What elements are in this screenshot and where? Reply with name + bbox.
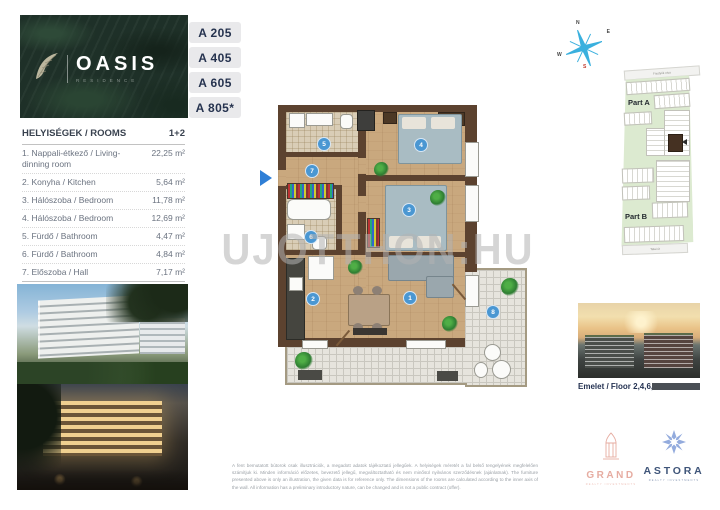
room-area: 5,64 m² bbox=[156, 177, 185, 187]
wall bbox=[278, 105, 286, 347]
pillow-icon bbox=[389, 236, 413, 248]
grand-subtitle: REALTY INVESTMENTS bbox=[583, 483, 639, 486]
astora-snowflake-icon bbox=[661, 443, 687, 460]
render-photo-day bbox=[17, 284, 188, 384]
site-map: Fiastyúk utca Part A Part B Tatai út bbox=[616, 68, 694, 254]
sink-vanity-icon bbox=[306, 113, 333, 126]
brand-divider bbox=[67, 55, 68, 83]
fridge-icon bbox=[308, 256, 334, 280]
disclaimer-hungarian: A fent bemutatott bútorok csak illusztrá… bbox=[232, 463, 538, 475]
rooms-table-header: HELYISÉGEK / ROOMS 1+2 bbox=[22, 126, 185, 145]
toilet-icon bbox=[340, 114, 353, 129]
floor-aerial-photo bbox=[578, 303, 700, 378]
outdoor-chair-icon bbox=[492, 360, 511, 379]
street-bottom: Tatai út bbox=[622, 243, 688, 255]
chair-icon bbox=[353, 286, 363, 295]
compass-e: E bbox=[607, 29, 610, 35]
grand-tower-icon bbox=[601, 449, 621, 466]
washing-machine-icon bbox=[289, 113, 305, 128]
brand-header-leaves-photo: OASIS RESIDENCE bbox=[20, 15, 188, 118]
greenery bbox=[17, 362, 188, 384]
pillow-icon bbox=[402, 117, 426, 129]
room-area: 12,69 m² bbox=[151, 213, 185, 223]
building-cluster bbox=[622, 186, 650, 201]
unit-tab-a205[interactable]: A 205 bbox=[189, 22, 241, 43]
rooms-table-title: HELYISÉGEK / ROOMS bbox=[22, 128, 126, 139]
table-row: 5. Fürdő / Bathroom 4,47 m² bbox=[22, 228, 185, 246]
door-opening bbox=[358, 196, 366, 212]
building-cluster bbox=[624, 111, 653, 125]
plant-icon bbox=[430, 190, 446, 206]
unit-tab-a605[interactable]: A 605 bbox=[189, 72, 241, 93]
tree-silhouette bbox=[106, 284, 188, 322]
outdoor-chair-icon bbox=[484, 344, 501, 361]
outdoor-table-icon bbox=[474, 362, 488, 378]
wall bbox=[286, 250, 360, 255]
room-area: 22,25 m² bbox=[151, 148, 185, 158]
chair-icon bbox=[372, 286, 382, 295]
pillow-icon bbox=[431, 117, 455, 129]
shelf-icon bbox=[367, 218, 380, 248]
room-label: 2. Konyha / Kitchen bbox=[22, 177, 134, 188]
dining-table-icon bbox=[348, 294, 390, 326]
building-marker-icon bbox=[682, 139, 687, 145]
room-label: 1. Nappali-étkező / Living-dinning room bbox=[22, 148, 134, 169]
brand-lockup: OASIS RESIDENCE bbox=[34, 51, 158, 86]
greenery bbox=[17, 469, 188, 490]
room-number-bedroom-b: 4 bbox=[414, 138, 428, 152]
bookshelf-icon bbox=[287, 183, 334, 199]
grand-logo[interactable]: GRAND REALTY INVESTMENTS bbox=[583, 432, 639, 494]
brand-subtitle: RESIDENCE bbox=[76, 78, 158, 83]
floor-plan: 1 2 3 4 5 6 7 8 bbox=[258, 100, 535, 395]
room-area: 7,17 m² bbox=[156, 267, 185, 277]
room-area: 4,47 m² bbox=[156, 231, 185, 241]
room-number-balcony: 8 bbox=[486, 305, 500, 319]
table-row: 7. Előszoba / Hall 7,17 m² bbox=[22, 264, 185, 282]
sliding-door bbox=[406, 340, 446, 349]
bed-icon bbox=[398, 114, 462, 164]
compass-s: S bbox=[583, 64, 586, 70]
shaft bbox=[357, 110, 375, 131]
stove-icon bbox=[289, 277, 303, 291]
unit-tab-a405[interactable]: A 405 bbox=[189, 47, 241, 68]
wall bbox=[278, 105, 477, 112]
street-bottom-label: Tatai út bbox=[650, 247, 660, 251]
window bbox=[465, 142, 479, 177]
kitchen-counter-icon bbox=[286, 258, 305, 340]
doormat-icon bbox=[298, 370, 322, 380]
compass-w: W bbox=[557, 52, 562, 58]
rooms-table-layout: 1+2 bbox=[169, 128, 185, 139]
room-label: 4. Hálószoba / Bedroom bbox=[22, 213, 134, 224]
room-number-bathroom-b: 6 bbox=[304, 230, 318, 244]
disclaimer-text: A fent bemutatott bútorok csak illusztrá… bbox=[232, 462, 538, 491]
sofa-chaise-icon bbox=[426, 276, 454, 298]
brochure-page: OASIS RESIDENCE A 205 A 405 A 605 A 805*… bbox=[0, 0, 720, 510]
table-row: 4. Hálószoba / Bedroom 12,69 m² bbox=[22, 210, 185, 228]
street-top-label: Fiastyúk utca bbox=[653, 70, 671, 75]
plant-icon bbox=[501, 278, 519, 296]
compass-n: N bbox=[576, 20, 580, 26]
doormat-icon bbox=[437, 371, 458, 381]
unit-tab-a805[interactable]: A 805* bbox=[189, 97, 241, 118]
building-cluster bbox=[622, 167, 655, 183]
pillow-icon bbox=[417, 236, 441, 248]
building-cluster bbox=[654, 93, 691, 109]
balcony-door bbox=[302, 340, 328, 349]
window bbox=[465, 185, 479, 222]
wall bbox=[286, 152, 360, 157]
room-number-bathroom-a: 5 bbox=[317, 137, 331, 151]
brand-text: OASIS RESIDENCE bbox=[76, 54, 158, 83]
room-label: 5. Fürdő / Bathroom bbox=[22, 231, 134, 242]
astora-subtitle: REALTY INVESTMENTS bbox=[643, 479, 705, 482]
grand-name: GRAND bbox=[583, 470, 639, 481]
plant-icon bbox=[442, 316, 458, 332]
table-row: 3. Hálószoba / Bedroom 11,78 m² bbox=[22, 192, 185, 210]
room-area: 11,78 m² bbox=[152, 195, 185, 205]
leaf-icon bbox=[34, 51, 60, 86]
building-cluster bbox=[652, 201, 689, 218]
building-shape bbox=[644, 333, 693, 368]
table-row: 6. Fürdő / Bathroom 4,84 m² bbox=[22, 246, 185, 264]
room-label: 7. Előszoba / Hall bbox=[22, 267, 134, 278]
room-label: 3. Hálószoba / Bedroom bbox=[22, 195, 134, 206]
room-area: 4,84 m² bbox=[156, 249, 185, 259]
brand-name: OASIS bbox=[76, 54, 158, 74]
highlighted-building[interactable] bbox=[668, 134, 683, 152]
sunset-glow bbox=[619, 311, 663, 334]
compass-rose-icon: N E W S bbox=[556, 20, 612, 76]
door-opening bbox=[358, 158, 366, 174]
render-photo-night bbox=[17, 384, 188, 490]
table-row: 1. Nappali-étkező / Living-dinning room … bbox=[22, 145, 185, 174]
plant-icon bbox=[374, 162, 389, 177]
part-a-label: Part A bbox=[628, 98, 650, 107]
plant-icon bbox=[348, 260, 363, 275]
tv-console-icon bbox=[353, 328, 387, 335]
room-number-hall: 7 bbox=[305, 164, 319, 178]
room-number-kitchen: 2 bbox=[306, 292, 320, 306]
room-number-bedroom-a: 3 bbox=[402, 203, 416, 217]
floor-caption: Emelet / Floor 2,4,6,8 bbox=[578, 382, 658, 391]
building-shape bbox=[140, 318, 184, 354]
entrance-arrow-icon bbox=[260, 170, 272, 186]
wall bbox=[336, 185, 342, 251]
wall bbox=[358, 112, 366, 255]
building-cluster bbox=[656, 160, 690, 202]
balcony-door bbox=[465, 275, 479, 307]
entry-door-opening bbox=[278, 170, 286, 186]
building-cluster bbox=[624, 225, 685, 243]
sink-icon bbox=[287, 224, 305, 240]
part-b-label: Part B bbox=[625, 212, 647, 221]
astora-name: ASTORA bbox=[643, 465, 705, 477]
floor-indicator-bar bbox=[652, 383, 700, 390]
building-cluster bbox=[646, 128, 665, 156]
building-shape bbox=[585, 335, 634, 369]
room-label: 6. Fürdő / Bathroom bbox=[22, 249, 134, 260]
room-number-living: 1 bbox=[403, 291, 417, 305]
astora-logo[interactable]: ASTORA REALTY INVESTMENTS bbox=[643, 428, 705, 494]
bathtub-icon bbox=[287, 199, 331, 220]
nightstand-icon bbox=[383, 112, 397, 124]
plant-icon bbox=[295, 352, 313, 370]
table-row: 2. Konyha / Kitchen 5,64 m² bbox=[22, 174, 185, 192]
